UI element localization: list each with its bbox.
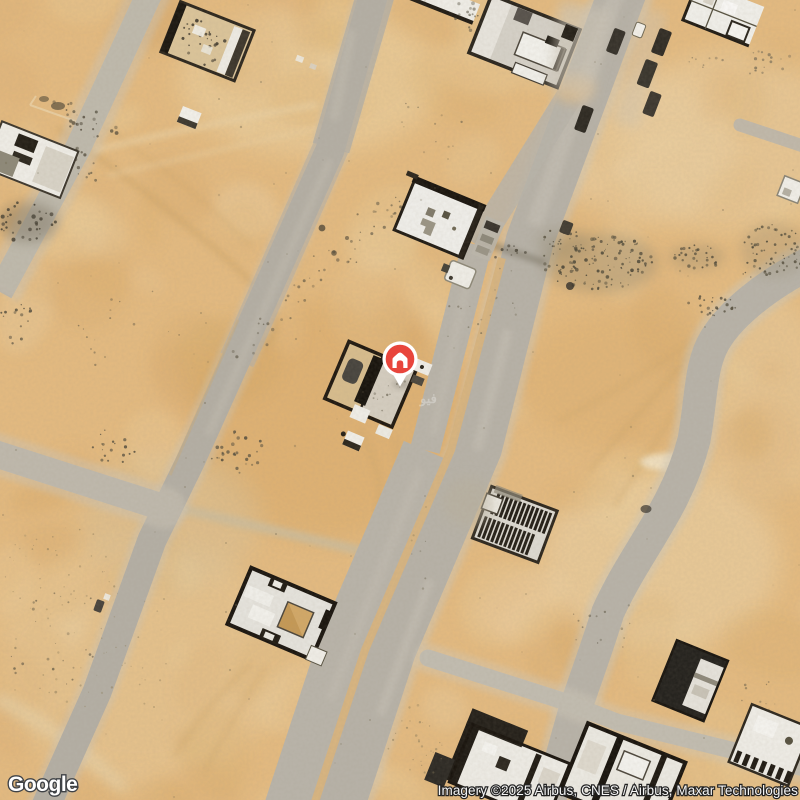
svg-text:Google: Google [8,773,77,796]
svg-text:فيو: فيو [419,391,437,407]
svg-text:Imagery ©2025 Airbus, CNES / A: Imagery ©2025 Airbus, CNES / Airbus, Max… [438,783,799,798]
